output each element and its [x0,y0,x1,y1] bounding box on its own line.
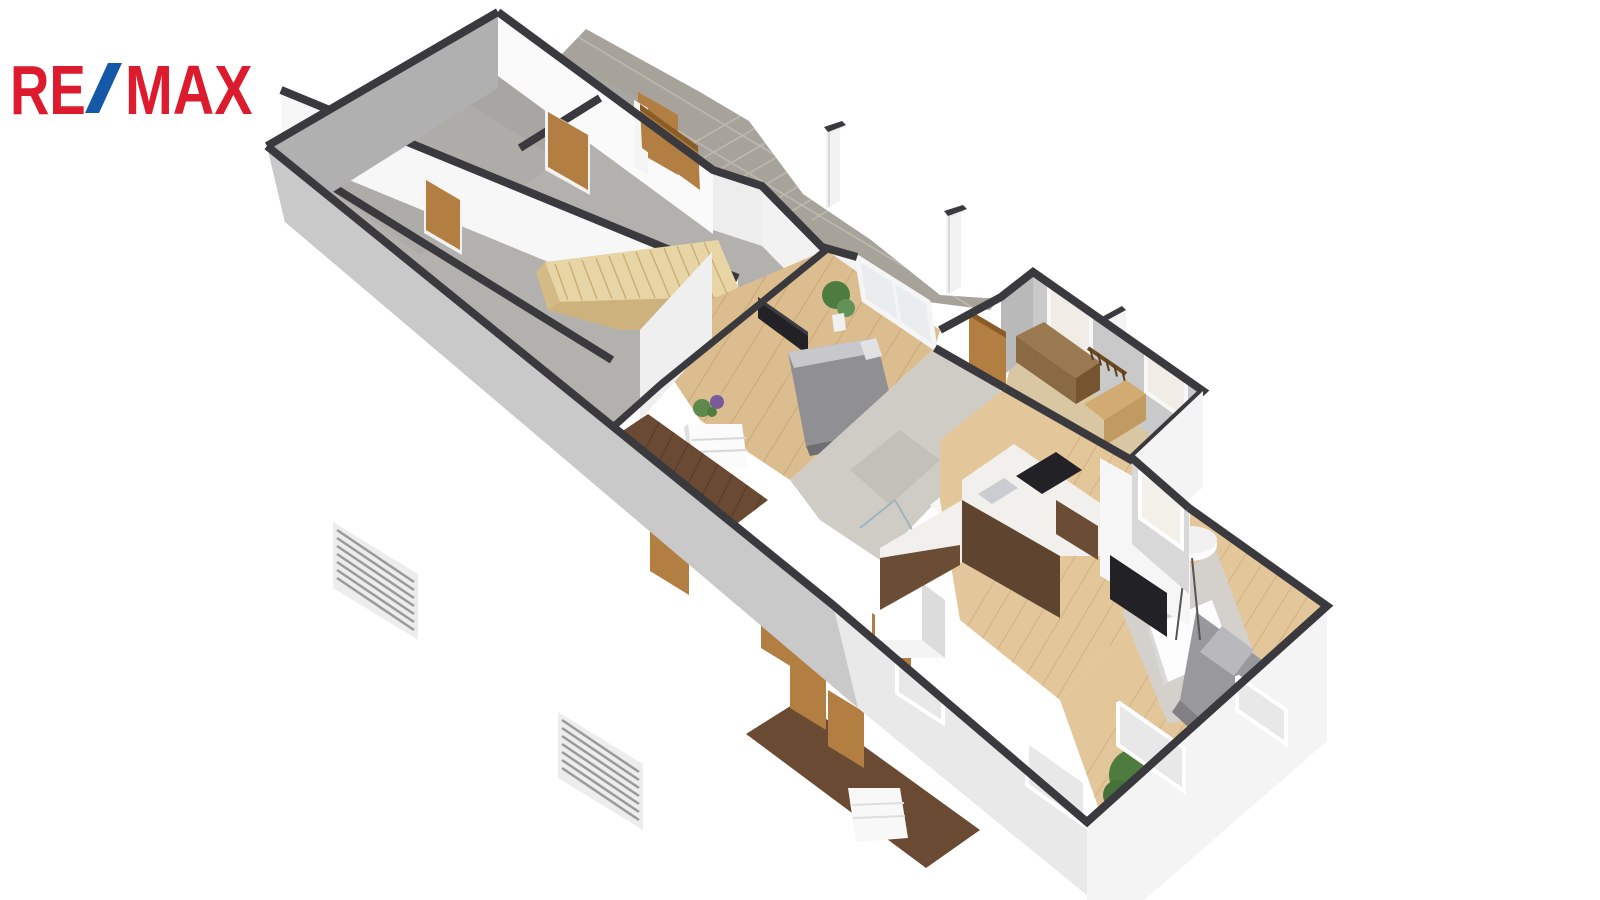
svg-text:MAX: MAX [125,51,253,130]
svg-text:RE: RE [10,52,86,130]
